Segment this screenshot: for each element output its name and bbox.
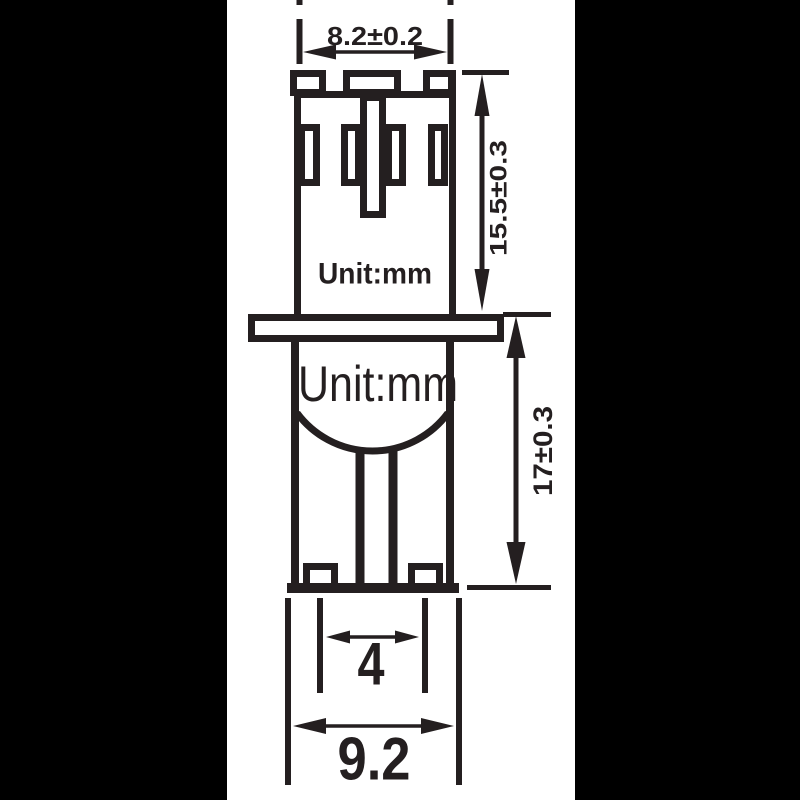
dimension-label-glass-width: 9.2 <box>338 726 411 793</box>
letterboxed-canvas: 8.2±0.2 Unit:mm Unit:mm <box>0 0 800 800</box>
side-latch-4 <box>432 128 445 183</box>
technical-drawing: 8.2±0.2 Unit:mm Unit:mm <box>0 0 800 800</box>
flange <box>252 318 501 339</box>
base-top-tab-left <box>294 74 323 93</box>
base-top-tab-right <box>427 74 452 93</box>
side-latch-1 <box>302 128 317 183</box>
unit-label-base: Unit:mm <box>318 258 432 291</box>
side-latch-2 <box>345 128 359 183</box>
dimension-label-top-width: 8.2±0.2 <box>327 21 423 51</box>
side-latch-3 <box>389 128 403 183</box>
dimension-label-contact-spacing: 4 <box>358 631 386 698</box>
dimension-label-base-height: 15.5±0.3 <box>486 140 513 256</box>
base-top-tab-center <box>347 74 398 93</box>
center-contact-blade <box>364 98 383 215</box>
dimension-label-glass-height: 17±0.3 <box>528 406 558 496</box>
unit-label-glass: Unit:mm <box>298 356 458 412</box>
